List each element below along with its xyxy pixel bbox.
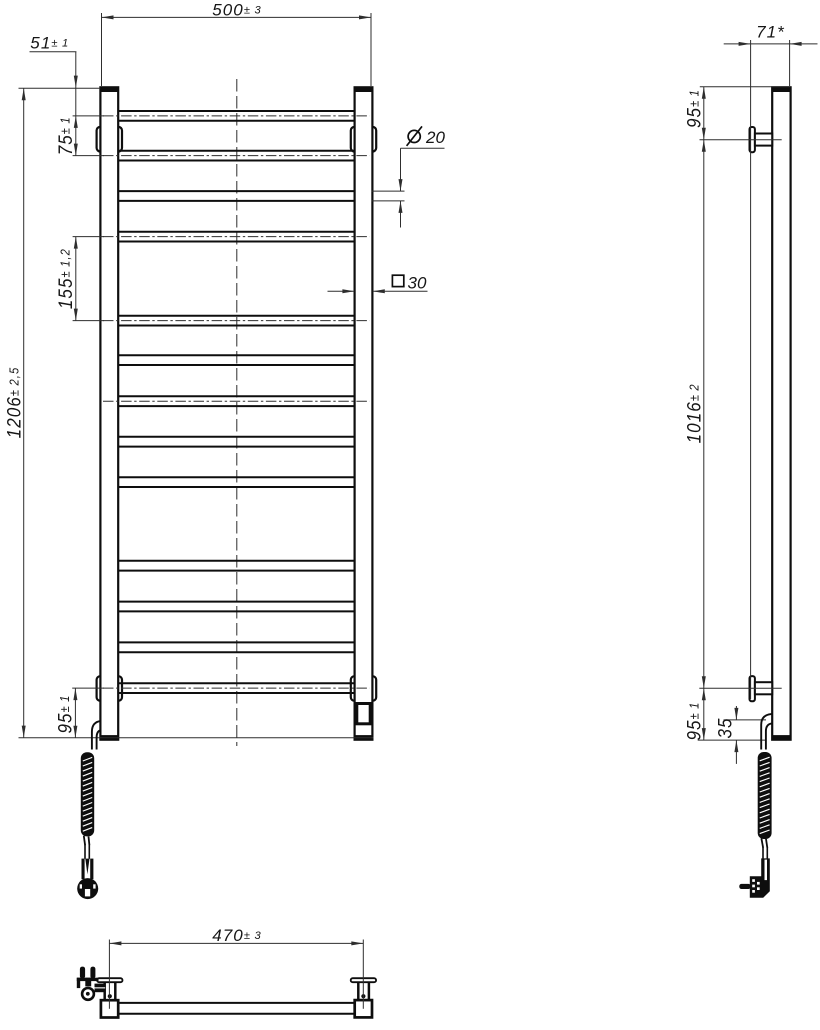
svg-text:30: 30 (408, 274, 427, 293)
svg-text:71*: 71* (756, 23, 785, 42)
svg-text:20: 20 (425, 128, 445, 147)
svg-text:1206± 2,5: 1206± 2,5 (2, 367, 24, 439)
svg-text:35: 35 (713, 717, 735, 738)
